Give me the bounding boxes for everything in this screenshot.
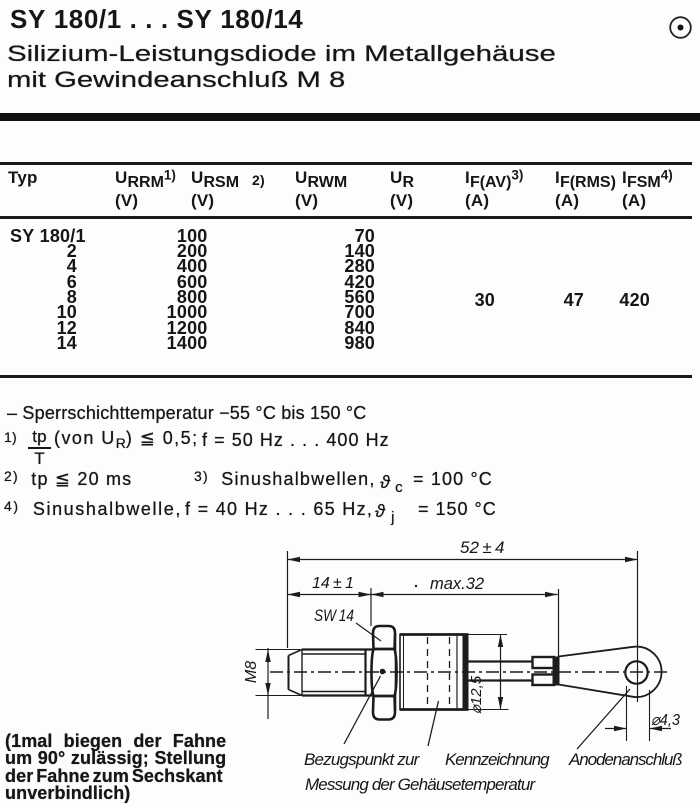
svg-text:14 ± 1: 14 ± 1: [312, 575, 354, 592]
svg-text:Bezugspunkt zur: Bezugspunkt zur: [304, 750, 421, 769]
svg-text:max.32: max.32: [430, 575, 484, 593]
svg-text:SW 14: SW 14: [314, 607, 354, 625]
svg-text:Messung der Gehäusetemperatur: Messung der Gehäusetemperatur: [305, 775, 536, 794]
svg-text:52 ± 4: 52 ± 4: [460, 538, 505, 557]
svg-text:M8: M8: [243, 661, 260, 683]
svg-text:Kennzeichnung: Kennzeichnung: [445, 750, 550, 769]
svg-text:⌀4,3: ⌀4,3: [651, 712, 680, 729]
svg-text:Anodenanschluß: Anodenanschluß: [568, 750, 682, 769]
